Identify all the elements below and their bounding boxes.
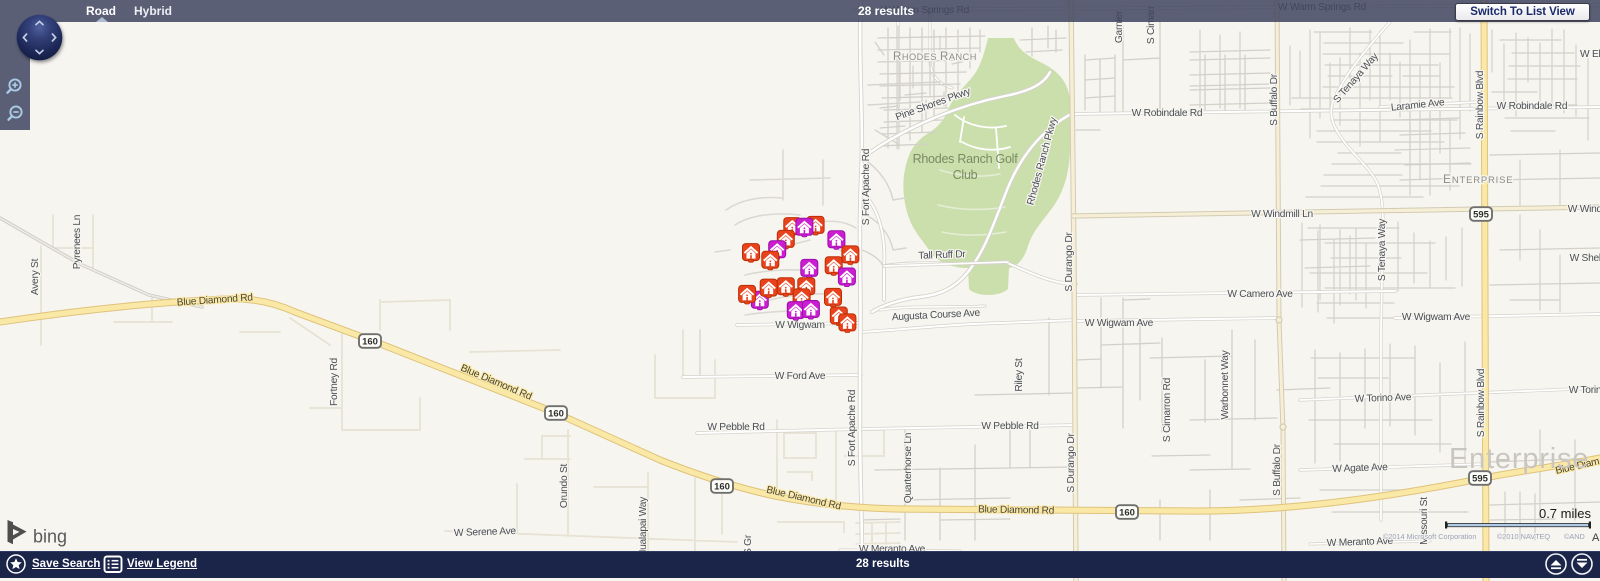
svg-text:160: 160 xyxy=(548,409,564,420)
svg-text:595: 595 xyxy=(1472,474,1489,485)
svg-text:S Buffalo Dr: S Buffalo Dr xyxy=(1269,73,1280,126)
svg-text:160: 160 xyxy=(714,482,730,493)
svg-text:S Cimarron Rd: S Cimarron Rd xyxy=(1162,377,1173,442)
svg-text:Hualapai Way: Hualapai Way xyxy=(638,496,649,557)
svg-text:ENTERPRISE: ENTERPRISE xyxy=(1443,172,1513,186)
svg-text:S Rainbow Blvd: S Rainbow Blvd xyxy=(1475,70,1486,139)
svg-text:©2010 NAVTEQ: ©2010 NAVTEQ xyxy=(1497,532,1550,541)
svg-text:W Camero Ave: W Camero Ave xyxy=(1227,289,1293,300)
svg-text:W Wigwam Ave: W Wigwam Ave xyxy=(1402,312,1471,323)
svg-text:Riley St: Riley St xyxy=(1014,358,1025,392)
svg-text:Warbonnet Way: Warbonnet Way xyxy=(1220,349,1231,419)
svg-text:S Rainbow Blvd: S Rainbow Blvd xyxy=(1476,368,1487,437)
svg-text:Rhodes Ranch Golf: Rhodes Ranch Golf xyxy=(913,152,1019,166)
svg-text:bing: bing xyxy=(33,527,67,547)
svg-text:Fortney Rd: Fortney Rd xyxy=(329,357,340,405)
svg-text:W Agate Ave: W Agate Ave xyxy=(1332,462,1388,475)
svg-text:W Torino A: W Torino A xyxy=(1569,385,1600,396)
svg-text:©2014 Microsoft Corporation: ©2014 Microsoft Corporation xyxy=(1383,532,1476,541)
svg-text:160: 160 xyxy=(362,337,378,348)
svg-text:RHODES RANCH: RHODES RANCH xyxy=(893,51,977,63)
svg-text:W Pebble Rd: W Pebble Rd xyxy=(707,422,765,433)
svg-text:S Durango Dr: S Durango Dr xyxy=(1066,433,1077,493)
svg-text:W Eld: W Eld xyxy=(1580,49,1600,60)
svg-text:595: 595 xyxy=(1473,210,1490,221)
svg-text:W Ford Ave: W Ford Ave xyxy=(775,371,826,382)
svg-text:S Fort Apache Rd: S Fort Apache Rd xyxy=(861,148,872,225)
svg-text:©AND: ©AND xyxy=(1564,532,1585,541)
svg-text:W Wigwam Ave: W Wigwam Ave xyxy=(1085,318,1154,329)
svg-text:W Serene Ave: W Serene Ave xyxy=(454,526,517,539)
svg-text:S Durango Dr: S Durango Dr xyxy=(1064,232,1075,292)
svg-text:Blue Diamond Rd: Blue Diamond Rd xyxy=(978,504,1055,516)
svg-text:0.7 miles: 0.7 miles xyxy=(1539,506,1592,521)
svg-text:W Robindale Rd: W Robindale Rd xyxy=(1497,101,1568,112)
svg-text:Avery St: Avery St xyxy=(30,258,41,295)
svg-text:Pyrenees Ln: Pyrenees Ln xyxy=(72,215,83,269)
svg-text:160: 160 xyxy=(1119,508,1135,519)
svg-text:W Windmill Ln: W Windmill Ln xyxy=(1251,209,1313,220)
svg-text:Club: Club xyxy=(953,168,978,182)
svg-text:W Shelb: W Shelb xyxy=(1570,253,1600,264)
svg-text:Orundo St: Orundo St xyxy=(559,463,570,508)
svg-text:W Wigwam: W Wigwam xyxy=(775,320,825,331)
svg-text:W Windmill: W Windmill xyxy=(1568,204,1600,215)
svg-text:Ar: Ar xyxy=(1592,532,1600,544)
svg-text:S Tenaya Way: S Tenaya Way xyxy=(1377,218,1388,281)
svg-text:W Torino Ave: W Torino Ave xyxy=(1354,392,1412,405)
svg-text:S Buffalo Dr: S Buffalo Dr xyxy=(1272,443,1283,496)
svg-text:W Robindale Rd: W Robindale Rd xyxy=(1132,108,1203,119)
svg-text:S Fort Apache Rd: S Fort Apache Rd xyxy=(847,389,858,466)
svg-text:W Pebble Rd: W Pebble Rd xyxy=(981,421,1039,432)
svg-text:Tall Ruff Dr: Tall Ruff Dr xyxy=(918,249,966,262)
svg-text:Enterprise: Enterprise xyxy=(1449,443,1589,475)
svg-text:Quarterhorse Ln: Quarterhorse Ln xyxy=(903,433,914,503)
